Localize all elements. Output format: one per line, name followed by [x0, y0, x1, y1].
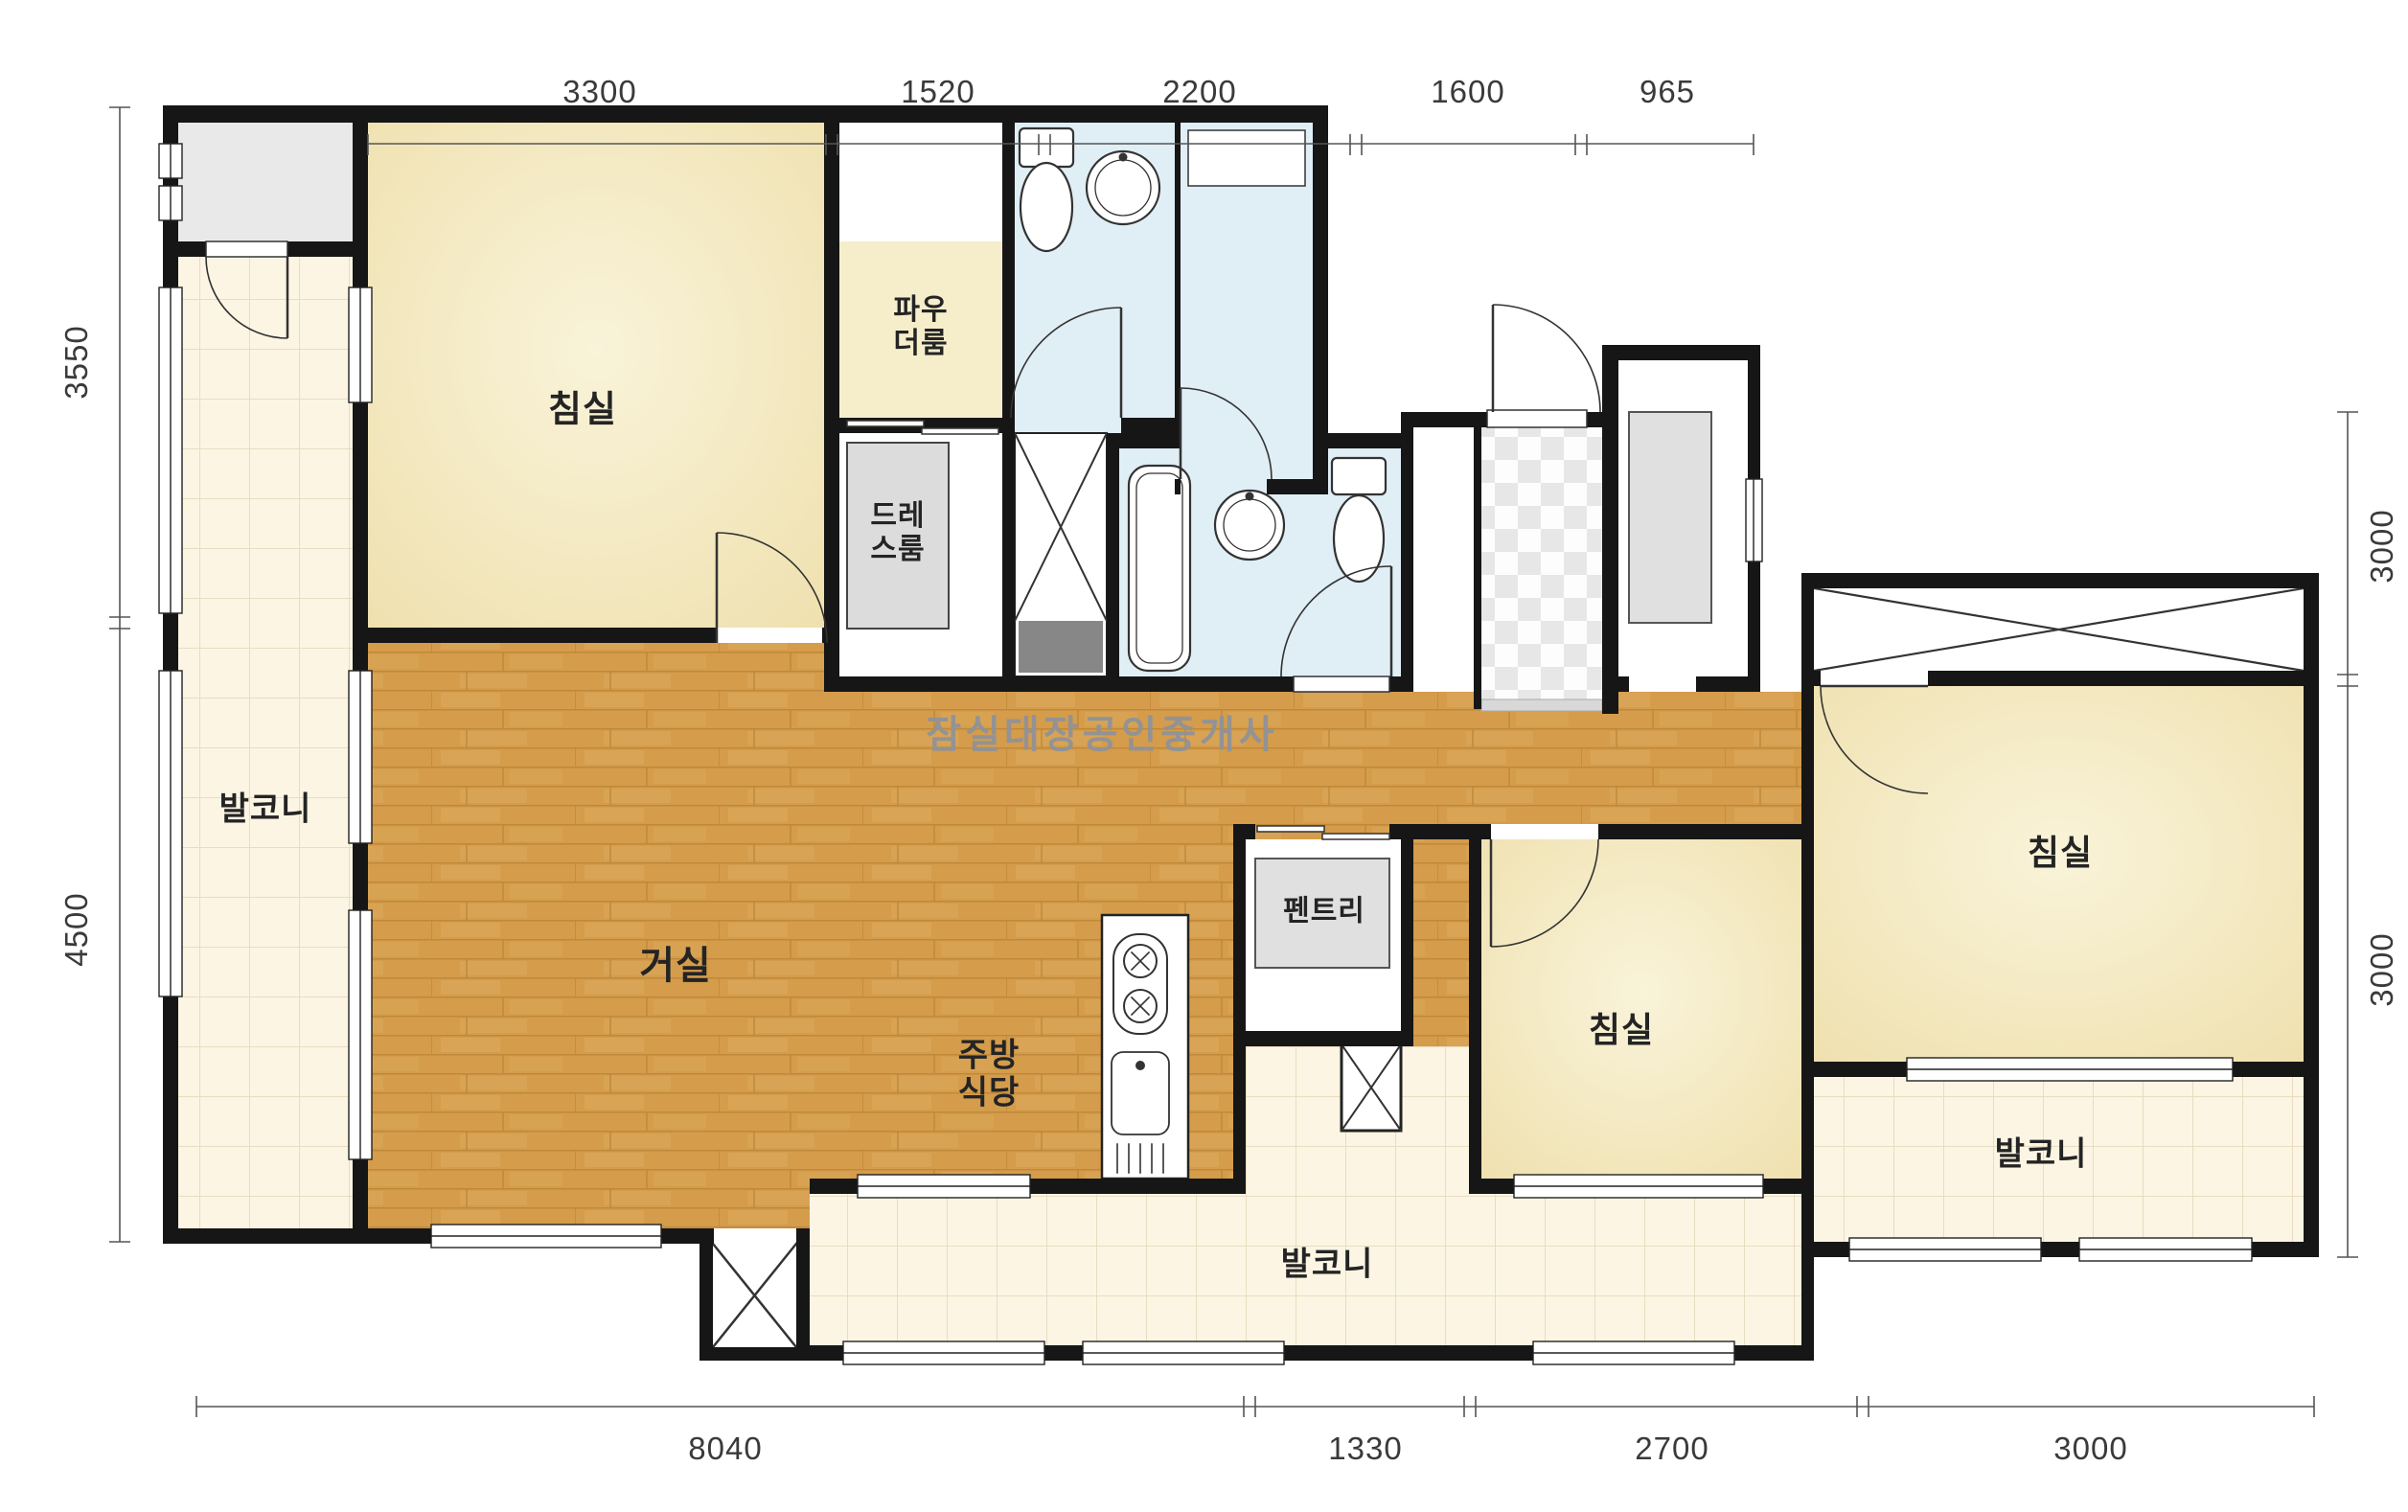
- room-label-kitchen-dining: 주방 식당: [958, 1038, 1021, 1113]
- room-label-bedroom-middle: 침실: [1589, 1010, 1654, 1050]
- window: [858, 1175, 1030, 1198]
- dim-top-2200: 2200: [1162, 74, 1236, 110]
- window: [843, 1341, 1044, 1364]
- window: [1849, 1238, 2041, 1261]
- dim-left-3550: 3550: [58, 325, 95, 399]
- dim-top-1600: 1600: [1431, 74, 1504, 110]
- dim-right-3000-upper: 3000: [2364, 509, 2400, 583]
- room-label-balcony-left: 발코니: [219, 790, 312, 828]
- kitchen-counter: [1102, 915, 1188, 1179]
- window: [349, 910, 372, 1159]
- entry-step: [1481, 699, 1602, 711]
- window: [1083, 1341, 1284, 1364]
- room-label-balcony-right: 발코니: [1995, 1135, 2088, 1173]
- window: [159, 287, 182, 613]
- floor-plan: 잠실대장공인중개사 침실 파우 더룸 드레 스룸 발코니 거실 주방 식당 펜트…: [0, 0, 2408, 1512]
- duct-x-small: [1342, 1044, 1401, 1131]
- duct-x: [1015, 433, 1107, 676]
- room-label-bedroom-right: 침실: [2028, 833, 2093, 873]
- window: [1907, 1058, 2233, 1081]
- door-entrance: [1487, 305, 1600, 427]
- window: [1746, 479, 1762, 561]
- room-label-balcony-bottom: 발코니: [1281, 1246, 1374, 1283]
- balcony-left-floor: [178, 257, 353, 1228]
- window: [1514, 1175, 1763, 1198]
- util-cabinet: [1629, 412, 1711, 623]
- window: [159, 144, 182, 178]
- room-label-bedroom-top-left: 침실: [548, 389, 617, 431]
- bedroom-middle-floor: [1481, 839, 1801, 1179]
- dim-bottom-1330: 1330: [1328, 1431, 1402, 1467]
- bathtub-icon: [1129, 466, 1190, 671]
- realtor-watermark: 잠실대장공인중개사: [926, 703, 1277, 759]
- dim-bottom-8040: 8040: [688, 1431, 762, 1467]
- dim-bottom-2700: 2700: [1635, 1431, 1709, 1467]
- shower-shelf: [1188, 130, 1305, 186]
- living-room-floor: [368, 643, 839, 1228]
- powder-nook: [839, 123, 1002, 241]
- dim-top-965: 965: [1640, 74, 1695, 110]
- duct-dark-box: [1019, 621, 1103, 673]
- room-label-dress-room: 드레 스룸: [870, 500, 925, 567]
- dim-bottom-3000: 3000: [2053, 1431, 2127, 1467]
- room-label-powder-room: 파우 더룸: [893, 294, 948, 361]
- window: [1533, 1341, 1734, 1364]
- bedroom-top-left-floor: [368, 123, 824, 628]
- room-label-pantry: 펜트리: [1283, 896, 1365, 929]
- window: [349, 671, 372, 843]
- window: [2079, 1238, 2252, 1261]
- dim-right-3000-lower: 3000: [2364, 932, 2400, 1006]
- dim-top-3300: 3300: [562, 74, 636, 110]
- window: [159, 671, 182, 997]
- toilet-icon: [1020, 128, 1073, 251]
- dim-top-1520: 1520: [901, 74, 975, 110]
- bedroom-right-floor: [1814, 686, 2304, 1062]
- window: [349, 287, 372, 402]
- dim-left-4500: 4500: [58, 892, 95, 966]
- window: [159, 186, 182, 220]
- sink-icon: [1087, 151, 1159, 224]
- utility-gray-room: [178, 123, 353, 241]
- sink2-icon: [1215, 491, 1284, 560]
- room-label-living-room: 거실: [639, 944, 712, 988]
- entry-checker: [1481, 427, 1602, 709]
- toilet2-icon: [1332, 458, 1386, 582]
- window: [431, 1225, 661, 1248]
- hallway: [1413, 427, 1481, 692]
